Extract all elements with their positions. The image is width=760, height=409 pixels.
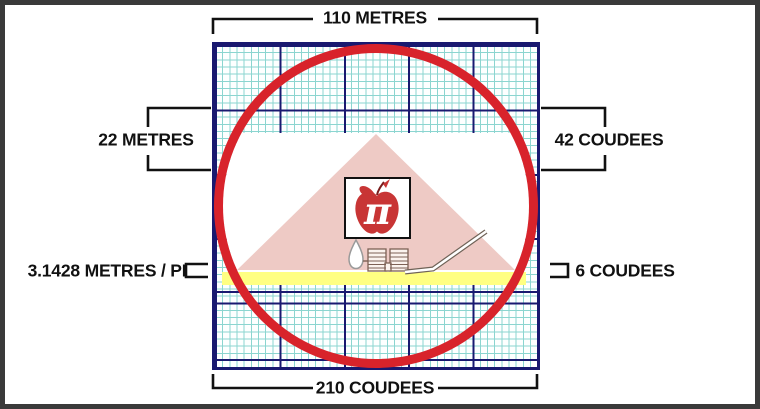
label-bottom-coudees: 210 COUDEES (316, 378, 434, 399)
diagram-overlay: π (5, 5, 755, 404)
diagram-frame: π 110 METRES 210 COUDEES 22 METRES 42 CO… (0, 0, 760, 409)
bracket-right-lower (550, 264, 568, 277)
pi-symbol: π (363, 189, 392, 233)
ground-strip (222, 272, 526, 285)
label-metres-per-pi: 3.1428 METRES / PI (28, 261, 187, 282)
bracket-left-lower (186, 264, 208, 277)
label-left-metres: 22 METRES (98, 130, 193, 151)
label-six-coudees: 6 COUDEES (575, 261, 674, 282)
label-right-coudees: 42 COUDEES (555, 130, 664, 151)
label-top-metres: 110 METRES (323, 8, 427, 29)
